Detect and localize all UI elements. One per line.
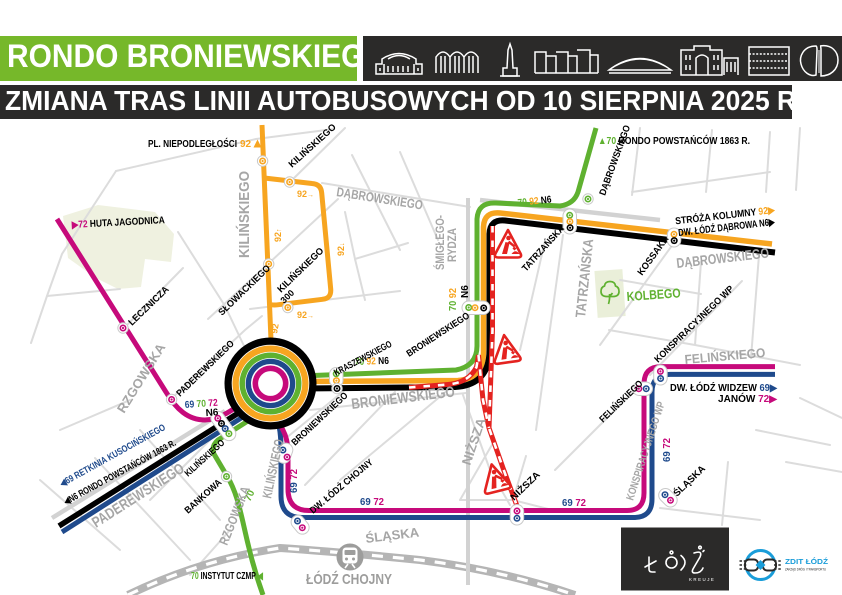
- svg-text:NIŻSZA: NIŻSZA: [508, 469, 542, 503]
- svg-text:70 92: 70 92: [448, 288, 459, 311]
- svg-text:N6: N6: [460, 285, 471, 298]
- svg-text:92→: 92→: [297, 310, 314, 320]
- svg-text:TATRZAŃSKA: TATRZAŃSKA: [572, 238, 596, 318]
- svg-text:92: 92: [240, 139, 252, 150]
- svg-text:SŁOWACKIEGO: SŁOWACKIEGO: [216, 263, 273, 318]
- svg-text:92↓: 92↓: [336, 242, 346, 256]
- svg-text:70 INSTYTUT CZMP ◀: 70 INSTYTUT CZMP ◀: [191, 571, 263, 582]
- svg-text:69 72: 69 72: [562, 498, 586, 509]
- svg-text:JANÓW 72▶: JANÓW 72▶: [718, 392, 778, 405]
- svg-text:92: 92: [269, 323, 281, 335]
- svg-text:DĄBROWSKIEGO: DĄBROWSKIEGO: [597, 124, 633, 197]
- svg-text:PL. NIEPODLEGŁOŚCI: PL. NIEPODLEGŁOŚCI: [148, 137, 237, 150]
- svg-text:DW. ŁÓDŹ WIDZEW 69▶: DW. ŁÓDŹ WIDZEW 69▶: [670, 381, 778, 394]
- svg-text:LECZNICZA: LECZNICZA: [126, 284, 171, 328]
- svg-text:KILIŃSKIEGO: KILIŃSKIEGO: [275, 246, 326, 296]
- svg-text:TATRZAŃSKA: TATRZAŃSKA: [520, 223, 567, 274]
- svg-text:69 72: 69 72: [289, 469, 300, 493]
- svg-text:92↑: 92↑: [273, 228, 283, 242]
- svg-text:69 72: 69 72: [662, 438, 673, 462]
- svg-text:BANKOWA: BANKOWA: [183, 477, 225, 516]
- svg-text:N6: N6: [205, 407, 219, 419]
- svg-text:92→: 92→: [297, 189, 314, 199]
- svg-text:KOLBEGO: KOLBEGO: [626, 285, 681, 304]
- svg-text:69 72: 69 72: [360, 497, 384, 508]
- svg-text:FELIŃSKIEGO: FELIŃSKIEGO: [684, 345, 766, 367]
- svg-text:KILIŃSKIEGO: KILIŃSKIEGO: [287, 122, 339, 170]
- svg-text:BRONIEWSKIEGO: BRONIEWSKIEGO: [405, 311, 472, 360]
- svg-text:ŚMIGŁEGO-: ŚMIGŁEGO-: [434, 215, 447, 270]
- svg-text:ŚLĄSKA: ŚLĄSKA: [365, 524, 421, 546]
- svg-text:ZARZĄD DRÓG I TRANSPORTU: ZARZĄD DRÓG I TRANSPORTU: [785, 567, 826, 572]
- svg-text:FELIŃSKIEGO: FELIŃSKIEGO: [597, 378, 645, 425]
- svg-text:ŁÓDŹ CHOJNY: ŁÓDŹ CHOJNY: [306, 570, 392, 588]
- svg-text:KILIŃSKIEGO: KILIŃSKIEGO: [236, 171, 253, 258]
- svg-text:ŚLĄSKA: ŚLĄSKA: [671, 463, 708, 500]
- svg-text:RYDZA: RYDZA: [447, 228, 459, 262]
- svg-text:KREUJE: KREUJE: [689, 577, 715, 582]
- svg-text:ZDIT ŁÓDŹ: ZDIT ŁÓDŹ: [785, 557, 828, 566]
